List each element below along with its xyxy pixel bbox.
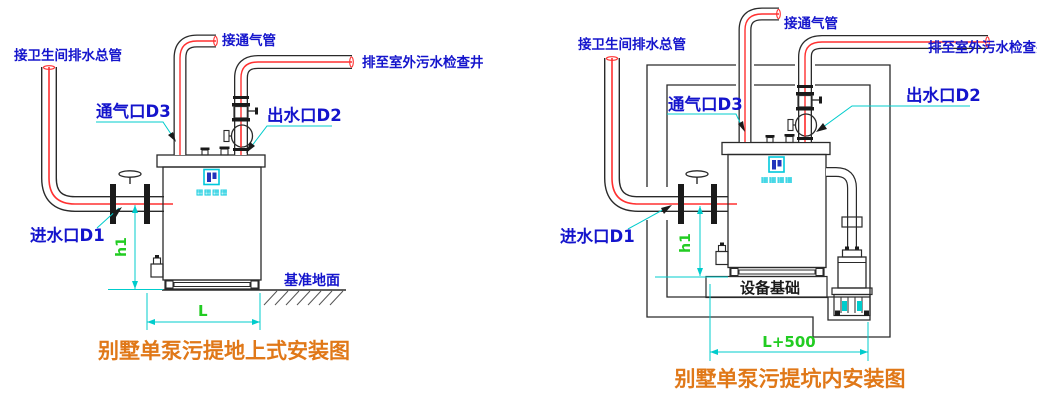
label-vent-conn: 接通气管 [222, 32, 276, 49]
flange [144, 184, 150, 224]
ground-hatch [264, 291, 343, 305]
label-vent-port-d3: 通气口D3 [96, 101, 171, 121]
label-discharge: 排至室外污水检查井 [362, 54, 484, 71]
lid-bolts [766, 134, 795, 143]
handwheel [119, 171, 141, 177]
drain-fitting [151, 255, 163, 277]
logo-text: ▦▦▦▦ [761, 175, 793, 184]
brand-logo: ▦▦▦▦ [761, 157, 793, 184]
label-inlet-port-d1: 进水口D1 [30, 225, 105, 245]
label-outlet-port-d2: 出水口D2 [906, 85, 981, 105]
drain-riser-pipe [607, 57, 738, 204]
label-discharge: 排至室外污水检查井 [928, 39, 1037, 56]
installation-drawing: ▦▦▦▦ [0, 0, 1037, 419]
pump-foot [864, 311, 869, 317]
flange [678, 184, 684, 224]
dimension-L: L [147, 293, 260, 330]
tank-lid [157, 155, 265, 167]
impeller-mark [857, 301, 862, 311]
brand-logo: ▦▦▦▦ [196, 170, 228, 197]
dim-L-label: L [198, 302, 208, 320]
dim-h1-label: h1 [678, 233, 694, 253]
pump-discharge-pipe [826, 172, 852, 250]
label-drain-main: 接卫生间排水总管 [578, 36, 686, 53]
pump-cap [843, 250, 862, 257]
label-drain-main: 接卫生间排水总管 [14, 47, 122, 64]
base-rail [165, 280, 259, 289]
drawing-svg: ▦▦▦▦ [0, 0, 1037, 419]
pipe-centerline [612, 58, 737, 204]
label-vent-port-d3: 通气口D3 [668, 94, 743, 114]
right-diagram: ▦▦▦▦ [560, 10, 1037, 392]
vent-pipe [180, 37, 217, 156]
label-foundation: 设备基础 [740, 279, 800, 297]
drain-riser-pipe [44, 66, 174, 204]
base-rail [730, 268, 824, 277]
label-outlet-port-d2: 出水口D2 [267, 105, 342, 125]
drain-fitting [716, 243, 728, 265]
impeller-mark [842, 301, 847, 311]
lifting-tank: ▦▦▦▦ [716, 134, 830, 277]
left-title: 别墅单泵污提地上式安装图 [97, 339, 350, 363]
dim-L500-label: L+500 [762, 333, 815, 351]
left-diagram: ▦▦▦▦ [14, 32, 484, 363]
submersible-pump-assembly [826, 172, 872, 316]
label-vent-conn: 接通气管 [784, 15, 838, 32]
pump-foot [835, 311, 840, 317]
handwheel [686, 171, 708, 177]
flange [110, 184, 116, 224]
leader-arrow [816, 123, 827, 132]
lid-bolts [201, 147, 230, 156]
pipe-centerline [49, 67, 173, 204]
tank-lid [722, 143, 830, 155]
check-valve-wheel [224, 131, 229, 142]
label-inlet-port-d1: 进水口D1 [560, 226, 635, 246]
logo-icon [769, 157, 784, 172]
vent-pipe [745, 10, 780, 143]
logo-text: ▦▦▦▦ [196, 188, 228, 197]
pump-flange [832, 288, 872, 295]
check-valve-wheel [788, 120, 793, 131]
lifting-tank: ▦▦▦▦ [151, 147, 265, 290]
flange [711, 184, 717, 224]
logo-icon [204, 170, 219, 185]
valve-stem [255, 108, 258, 115]
dim-h1-label: h1 [114, 237, 130, 257]
label-ground: 基准地面 [284, 272, 340, 289]
submersible-pump [832, 247, 872, 317]
pump-motor [838, 257, 866, 288]
right-title: 别墅单泵污提坑内安装图 [674, 367, 906, 391]
valve-stem [819, 97, 822, 104]
ground-line [162, 290, 346, 305]
